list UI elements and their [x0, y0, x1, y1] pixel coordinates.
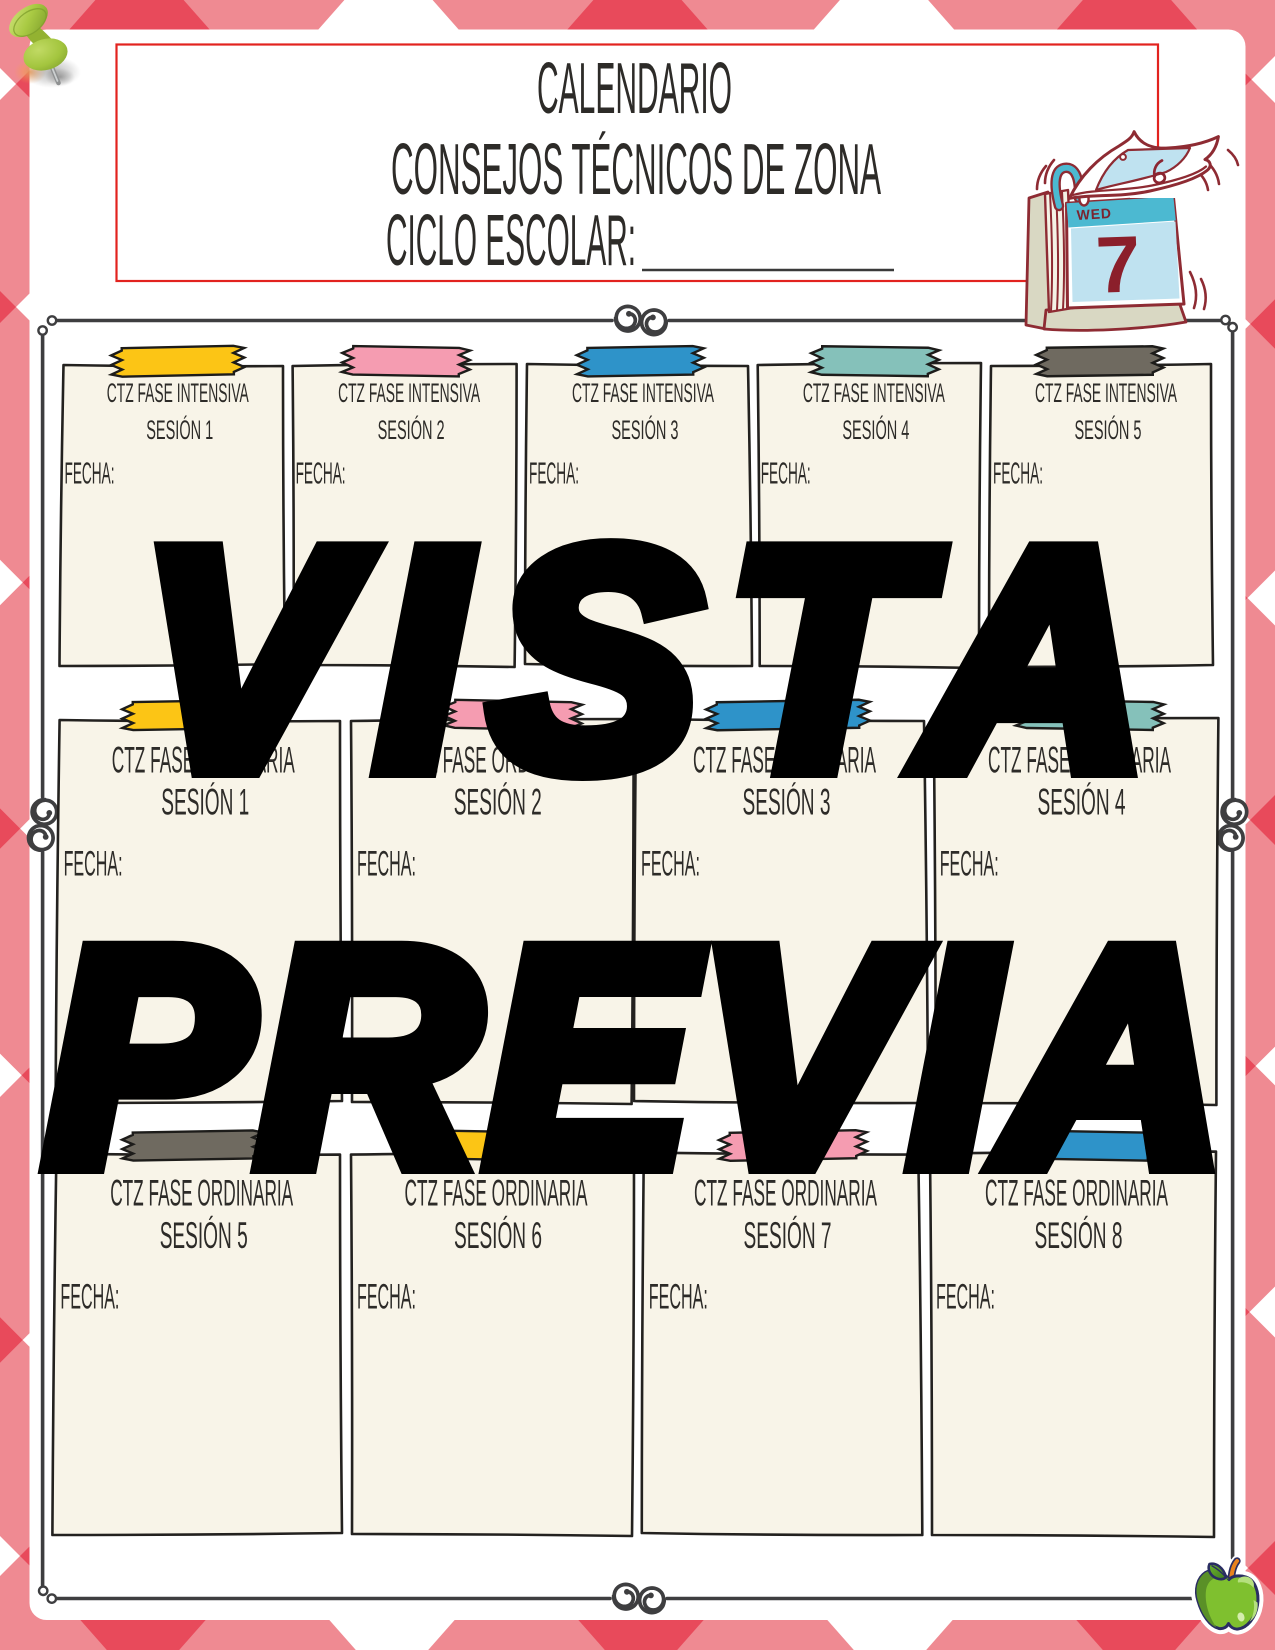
svg-text:SESIÓN 5: SESIÓN 5 [1075, 414, 1142, 445]
svg-text:FECHA:: FECHA: [649, 1277, 708, 1317]
svg-text:CTZ FASE INTENSIVA: CTZ FASE INTENSIVA [107, 377, 249, 408]
svg-text:SESIÓN 2: SESIÓN 2 [378, 414, 445, 445]
svg-text:FECHA:: FECHA: [357, 844, 416, 884]
svg-text:SESIÓN 3: SESIÓN 3 [612, 414, 679, 445]
svg-text:FECHA:: FECHA: [60, 1277, 119, 1317]
svg-text:FECHA:: FECHA: [64, 844, 123, 884]
svg-text:CTZ FASE INTENSIVA: CTZ FASE INTENSIVA [803, 377, 945, 408]
svg-text:CONSEJOS TÉCNICOS DE ZONA: CONSEJOS TÉCNICOS DE ZONA [391, 130, 881, 210]
svg-text:CALENDARIO: CALENDARIO [537, 49, 732, 129]
svg-text:CTZ FASE INTENSIVA: CTZ FASE INTENSIVA [572, 377, 714, 408]
svg-text:FECHA:: FECHA: [936, 1277, 995, 1317]
svg-text:CTZ FASE INTENSIVA: CTZ FASE INTENSIVA [1035, 377, 1177, 408]
svg-text:7: 7 [1094, 219, 1142, 309]
svg-text:PREVIA: PREVIA [46, 886, 1225, 1229]
svg-text:FECHA:: FECHA: [357, 1277, 416, 1317]
svg-text:CICLO ESCOLAR:: CICLO ESCOLAR: [386, 201, 636, 281]
svg-text:FECHA:: FECHA: [641, 844, 700, 884]
svg-text:CTZ FASE INTENSIVA: CTZ FASE INTENSIVA [338, 377, 480, 408]
svg-text:FECHA:: FECHA: [65, 456, 115, 491]
svg-text:VISTA: VISTA [141, 486, 1148, 834]
svg-text:SESIÓN 4: SESIÓN 4 [842, 414, 909, 445]
svg-text:FECHA:: FECHA: [940, 844, 999, 884]
svg-text:SESIÓN 1: SESIÓN 1 [146, 414, 213, 445]
